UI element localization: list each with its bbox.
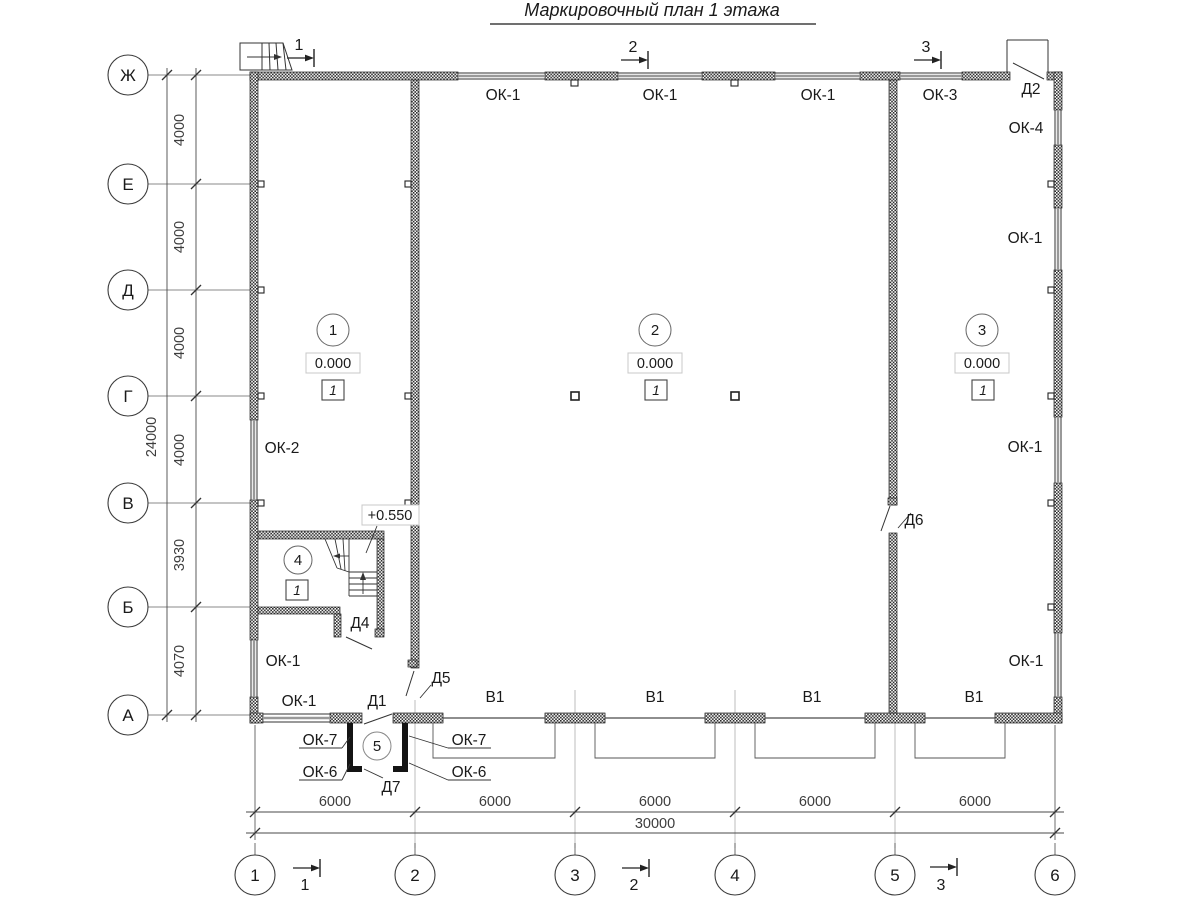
mark-labels: ОК-1 ОК-1 ОК-1 ОК-3 Д2 ОК-4 ОК-1 ОК-1 ОК… <box>265 81 1044 796</box>
room-3-marker: 3 0.000 1 <box>955 314 1009 400</box>
room-3-finish: 1 <box>979 383 987 398</box>
dim-v-b: 3930 <box>172 539 188 571</box>
label-ok3-top: ОК-3 <box>923 87 958 104</box>
drawing-title: Маркировочный план 1 этажа <box>490 0 816 24</box>
dim-zh-e: 4000 <box>172 114 188 146</box>
dim-d-g: 4000 <box>172 327 188 359</box>
room-3-number: 3 <box>978 322 986 339</box>
entrance-porch-top-right <box>1007 40 1048 72</box>
label-ok6-right: ОК-6 <box>452 764 487 781</box>
section-mark-3-top: 3 <box>914 39 941 69</box>
window-left-2 <box>251 640 257 697</box>
label-ok1-top2: ОК-1 <box>643 87 678 104</box>
section-mark-2-bottom: 2 <box>622 859 649 894</box>
room-2-finish: 1 <box>652 383 660 398</box>
room-1-elevation: 0.000 <box>315 356 351 372</box>
axis-row-g: Г <box>123 387 132 406</box>
label-ok4: ОК-4 <box>1009 120 1044 137</box>
room-2-marker: 2 0.000 1 <box>628 314 682 400</box>
svg-text:2: 2 <box>629 39 638 56</box>
window-right-1 <box>1055 110 1061 145</box>
axis-row-e: Е <box>122 175 133 194</box>
label-d5: Д5 <box>431 670 450 687</box>
door-d6-leaf <box>881 506 890 531</box>
axis-row-d: Д <box>122 281 134 300</box>
label-ok2: ОК-2 <box>265 440 300 457</box>
left-dimension-values: 4000 4000 4000 4000 3930 4070 24000 <box>144 114 188 677</box>
room-4-number: 4 <box>294 552 302 569</box>
dim-bottom-total: 30000 <box>635 816 675 832</box>
floor-plan-page: Маркировочный план 1 этажа Ж Е Д Г В Б А <box>0 0 1200 900</box>
axis-col-3: 3 <box>570 866 579 885</box>
dim-b-a: 4070 <box>172 645 188 677</box>
label-ok1-left: ОК-1 <box>266 653 301 670</box>
axis-row-a: А <box>122 706 134 725</box>
label-ok1-top1: ОК-1 <box>486 87 521 104</box>
dim-left-total: 24000 <box>144 417 160 457</box>
section-mark-3-bottom: 3 <box>930 858 957 894</box>
room-1-marker: 1 0.000 1 <box>306 314 360 400</box>
label-v1-4: В1 <box>965 689 984 706</box>
left-dimension-ticks <box>162 70 201 720</box>
axis-col-4: 4 <box>730 866 739 885</box>
svg-text:3: 3 <box>922 39 931 56</box>
axis-row-zh: Ж <box>120 66 136 85</box>
row-axis-grid <box>148 75 252 715</box>
room-1-finish: 1 <box>329 383 337 398</box>
window-top-1 <box>458 73 545 79</box>
label-d1: Д1 <box>367 693 386 710</box>
window-right-2 <box>1055 208 1061 270</box>
label-d7: Д7 <box>381 779 400 796</box>
svg-text:2: 2 <box>630 877 639 894</box>
stair-elevation-value: +0.550 <box>368 508 413 524</box>
room-3-elevation: 0.000 <box>964 356 1000 372</box>
label-ok7-right: ОК-7 <box>452 732 487 749</box>
room-1-number: 1 <box>329 322 337 339</box>
stair-elevation-mark: +0.550 <box>362 505 419 553</box>
label-d6: Д6 <box>904 512 923 529</box>
section-marks: 1 2 3 1 2 3 <box>287 37 957 894</box>
axis-col-1: 1 <box>250 866 259 885</box>
label-ok1-right1: ОК-1 <box>1008 230 1043 247</box>
label-d2: Д2 <box>1021 81 1040 98</box>
left-dimension-lines <box>167 68 196 722</box>
section-mark-1-top: 1 <box>287 37 314 67</box>
dim-4-5: 6000 <box>799 794 831 810</box>
gate-ramps <box>433 723 1005 758</box>
room-5-number: 5 <box>373 738 381 755</box>
door-d4-leaf <box>346 637 372 649</box>
door-d2-leaf <box>1013 63 1044 79</box>
window-right-4 <box>1055 633 1061 697</box>
axis-row-v: В <box>122 494 133 513</box>
dim-g-v: 4000 <box>172 434 188 466</box>
door-swings <box>346 63 1044 724</box>
room-2-number: 2 <box>651 322 659 339</box>
label-d4: Д4 <box>350 615 369 632</box>
window-right-3 <box>1055 417 1061 483</box>
floor-plan-drawing: Маркировочный план 1 этажа Ж Е Д Г В Б А <box>0 0 1200 900</box>
room-4-finish: 1 <box>293 583 301 598</box>
window-top-2 <box>618 73 702 79</box>
label-ok1-bottom: ОК-1 <box>282 693 317 710</box>
label-ok6-left: ОК-6 <box>303 764 338 781</box>
section-mark-2-top: 2 <box>621 39 648 69</box>
door-d5-leaf <box>406 671 414 696</box>
axis-row-b: Б <box>122 598 133 617</box>
entrance-steps-top-left <box>240 43 292 70</box>
bottom-dimension-values: 6000 6000 6000 6000 6000 30000 <box>319 794 991 832</box>
window-left-1 <box>251 420 257 500</box>
window-top-3 <box>775 73 860 79</box>
label-ok7-left: ОК-7 <box>303 732 338 749</box>
svg-text:1: 1 <box>295 37 304 54</box>
window-bottom-1 <box>263 714 330 722</box>
dim-1-2: 6000 <box>319 794 351 810</box>
svg-text:3: 3 <box>937 877 946 894</box>
window-top-4 <box>900 73 962 79</box>
axis-col-2: 2 <box>410 866 419 885</box>
room-5-marker: 5 <box>363 732 391 760</box>
column-g3 <box>571 392 579 400</box>
section-mark-1-bottom: 1 <box>293 859 320 894</box>
dim-5-6: 6000 <box>959 794 991 810</box>
label-ok1-right2: ОК-1 <box>1008 439 1043 456</box>
label-v1-1: В1 <box>486 689 505 706</box>
label-v1-2: В1 <box>646 689 665 706</box>
column-g4 <box>731 392 739 400</box>
axis-col-5: 5 <box>890 866 899 885</box>
label-ok1-top3: ОК-1 <box>801 87 836 104</box>
dim-e-d: 4000 <box>172 221 188 253</box>
stair <box>325 539 377 596</box>
dim-2-3: 6000 <box>479 794 511 810</box>
leader-lines <box>299 513 911 780</box>
label-ok1-right3: ОК-1 <box>1009 653 1044 670</box>
svg-text:1: 1 <box>301 877 310 894</box>
room-2-elevation: 0.000 <box>637 356 673 372</box>
label-v1-3: В1 <box>803 689 822 706</box>
page-title: Маркировочный план 1 этажа <box>524 0 779 20</box>
axis-col-6: 6 <box>1050 866 1059 885</box>
row-axis-bubbles: Ж Е Д Г В Б А <box>108 55 148 735</box>
dim-3-4: 6000 <box>639 794 671 810</box>
col-axis-bubbles: 1 2 3 4 5 6 <box>235 855 1075 895</box>
door-d1-leaf <box>364 714 392 724</box>
room-4-marker: 4 1 <box>284 546 312 600</box>
